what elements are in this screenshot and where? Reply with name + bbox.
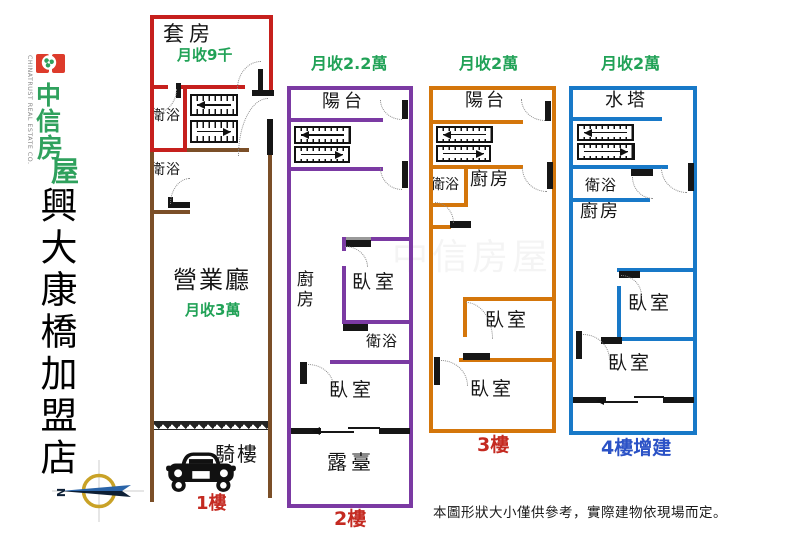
stairs-arrow-right-icon xyxy=(440,150,487,158)
rent-label-hall-1f: 月收3萬 xyxy=(185,303,240,319)
room-label-bedroom2-2f: 臥室 xyxy=(329,381,375,401)
room-label-kitchen-2f: 廚房 xyxy=(293,270,311,310)
rent-label-suite-1f: 月收9千 xyxy=(177,48,232,64)
wall xyxy=(268,155,272,498)
door-jamb xyxy=(343,324,368,331)
stairs-arrow-left-icon xyxy=(298,131,347,139)
door-swing-arc xyxy=(466,302,493,339)
room-label-balcony-3f: 陽台 xyxy=(465,92,507,111)
door-jamb xyxy=(688,163,694,191)
door-jamb xyxy=(316,431,354,433)
room-label-bath-4f: 衛浴 xyxy=(585,178,617,194)
door-swing-arc xyxy=(308,364,334,387)
rent-label-2f: 月收2.2萬 xyxy=(311,56,387,73)
rent-label-3f: 月收2萬 xyxy=(459,56,518,73)
wall xyxy=(150,15,154,152)
room-label-suite-1f: 套房 xyxy=(163,23,215,45)
door-jamb xyxy=(547,162,553,189)
room-label-tank-4f: 水塔 xyxy=(605,92,649,111)
room-label-bedroom1-4f: 臥室 xyxy=(628,294,672,314)
room-label-bedroom2-4f: 臥室 xyxy=(608,354,652,374)
door-jamb xyxy=(300,362,307,384)
door-jamb xyxy=(348,427,380,429)
door-swing-arc xyxy=(521,99,545,121)
stairs-icon xyxy=(190,120,238,143)
wall xyxy=(429,429,556,433)
wall xyxy=(181,85,245,89)
stairs-icon xyxy=(294,146,350,163)
room-label-kitchen-4f: 廚房 xyxy=(580,203,620,222)
wall xyxy=(429,86,433,433)
room-label-bath-3f: 衛浴 xyxy=(431,178,459,193)
rent-label-4f: 月收2萬 xyxy=(601,56,660,73)
wall xyxy=(150,148,187,152)
floorplans: 套房 月收9千 衛浴 衛浴 營業廳 月收3萬 騎樓 1樓 月收2.2萬 陽台 廚… xyxy=(0,0,800,553)
room-label-terrace-2f: 露臺 xyxy=(327,452,375,473)
floor-label-4f: 4樓增建 xyxy=(601,439,671,459)
door-jamb xyxy=(402,161,408,188)
door-jamb xyxy=(402,100,408,119)
room-label-hall-1f: 營業廳 xyxy=(173,268,251,293)
door-swing-arc xyxy=(522,168,547,192)
stairs-arrow-right-icon xyxy=(581,148,631,156)
wall xyxy=(573,165,668,169)
sliding-door-arrow-icon xyxy=(592,397,604,405)
wall xyxy=(287,504,413,508)
wall xyxy=(433,165,523,169)
door-jamb xyxy=(252,90,274,96)
door-jamb xyxy=(434,357,440,385)
room-label-bedroom2-3f: 臥室 xyxy=(470,380,514,400)
stairs-icon xyxy=(577,143,635,160)
door-jamb xyxy=(600,401,638,403)
floorplan-image: CHINATRUST REAL ESTATE CO. 中 信 房 屋 興大康橋加… xyxy=(0,0,800,553)
wall xyxy=(429,86,556,90)
door-swing-arc xyxy=(632,177,653,199)
wall xyxy=(463,297,556,301)
wall xyxy=(287,86,413,90)
wall xyxy=(150,152,154,502)
room-label-bath-2f: 衛浴 xyxy=(366,334,398,350)
disclaimer-text: 本圖形狀大小僅供參考，實際建物依現場而定。 xyxy=(433,501,727,521)
stairs-arrow-right-icon xyxy=(194,128,234,136)
door-swing-arc xyxy=(238,98,268,156)
room-label-balcony-2f: 陽台 xyxy=(322,93,366,112)
wall xyxy=(269,15,273,91)
door-jamb xyxy=(463,353,490,360)
floor-label-3f: 3樓 xyxy=(477,436,509,456)
door-jamb xyxy=(634,396,664,398)
stairs-icon xyxy=(436,126,493,143)
wall xyxy=(291,167,383,171)
wall xyxy=(569,86,573,435)
sliding-door-arrow-icon xyxy=(308,427,320,435)
door-swing-arc xyxy=(380,100,402,120)
wall xyxy=(569,431,697,435)
room-label-kitchen-3f: 廚房 xyxy=(470,171,510,190)
wall xyxy=(433,225,451,229)
wall xyxy=(573,198,650,202)
room-label-arcade-1f: 騎樓 xyxy=(215,444,259,465)
stairs-icon xyxy=(190,94,238,116)
wall xyxy=(150,210,190,214)
stairs-icon xyxy=(294,126,351,144)
stairs-arrow-right-icon xyxy=(298,151,346,159)
stairs-arrow-left-icon xyxy=(440,131,489,139)
room-label-bath-lower-1f: 衛浴 xyxy=(151,163,181,178)
wall xyxy=(573,117,662,121)
door-swing-arc xyxy=(441,360,468,386)
wall xyxy=(569,86,697,90)
door-swing-arc xyxy=(380,168,402,190)
wall xyxy=(291,118,383,122)
wall xyxy=(552,86,556,433)
wall xyxy=(409,86,413,508)
floor-label-2f: 2樓 xyxy=(334,510,366,530)
wall xyxy=(464,169,468,205)
wall xyxy=(287,86,291,508)
door-jamb xyxy=(545,101,551,121)
floor-label-1f: 1樓 xyxy=(196,495,227,514)
stairs-icon xyxy=(577,124,634,141)
wall xyxy=(433,120,523,124)
room-label-bedroom1-2f: 臥室 xyxy=(352,273,398,293)
door-jamb xyxy=(379,428,410,434)
stairs-icon xyxy=(436,145,491,162)
door-swing-arc xyxy=(345,246,368,267)
door-swing-arc xyxy=(237,61,261,89)
door-jamb xyxy=(576,331,582,359)
door-jamb xyxy=(631,169,653,176)
wall xyxy=(693,86,697,435)
door-swing-arc xyxy=(661,168,687,193)
door-swing-arc xyxy=(170,178,190,204)
door-jamb xyxy=(663,397,694,403)
wall xyxy=(330,360,409,364)
wall xyxy=(183,85,187,152)
wall xyxy=(342,266,346,324)
rolling-shutter-icon xyxy=(154,421,268,430)
door-swing-arc xyxy=(621,275,642,296)
stairs-arrow-left-icon xyxy=(581,129,630,137)
stairs-arrow-left-icon xyxy=(194,101,234,109)
wall xyxy=(150,15,273,19)
